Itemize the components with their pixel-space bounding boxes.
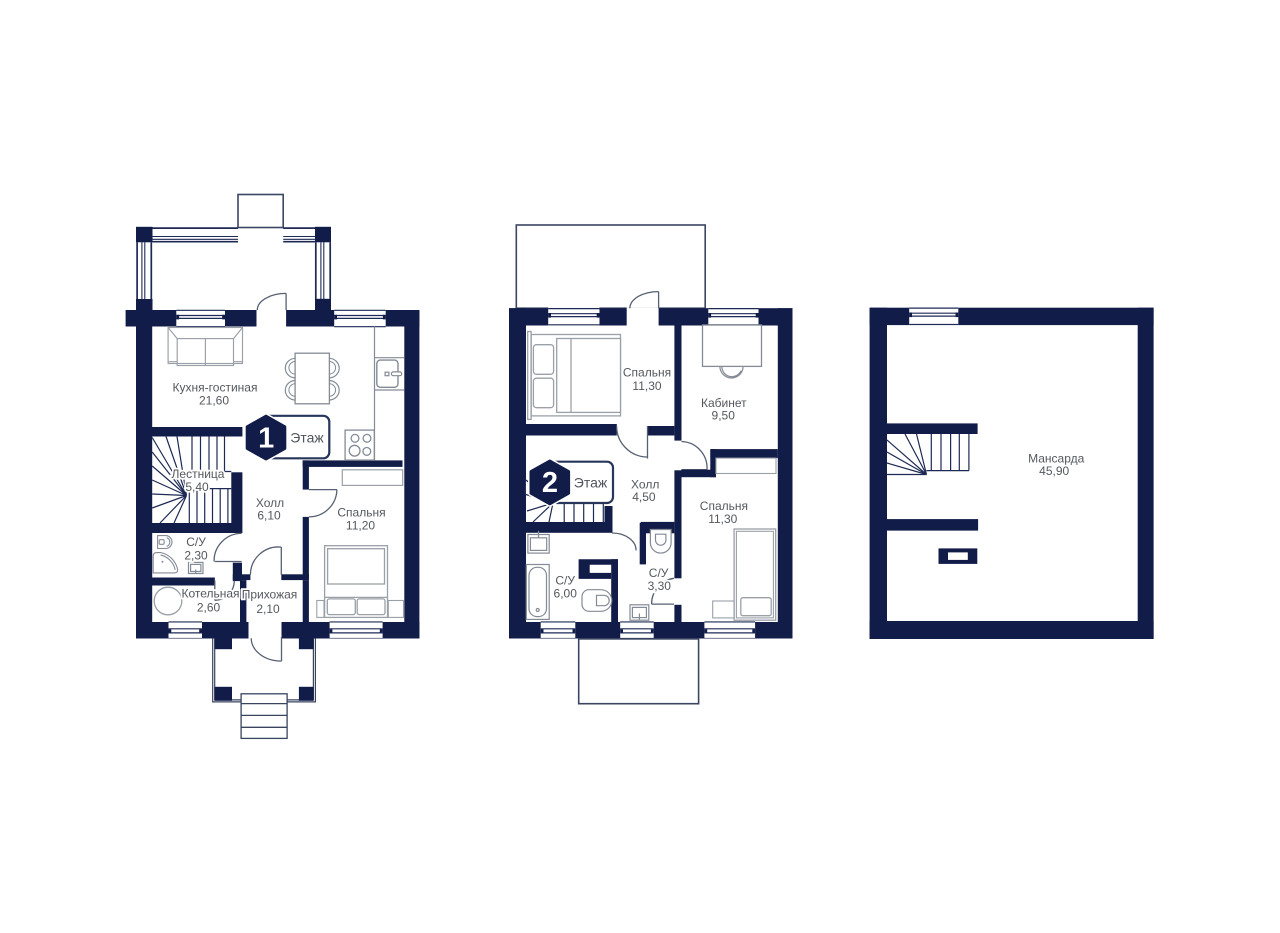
svg-text:Этаж: Этаж <box>574 474 608 490</box>
svg-text:6,00: 6,00 <box>554 586 578 600</box>
svg-text:Кухня-гостиная: Кухня-гостиная <box>173 381 258 395</box>
svg-text:С/У: С/У <box>649 566 669 580</box>
svg-text:11,20: 11,20 <box>346 519 375 533</box>
svg-text:2,10: 2,10 <box>256 602 280 616</box>
svg-text:2: 2 <box>542 467 558 499</box>
svg-text:21,60: 21,60 <box>199 394 229 408</box>
svg-text:Прихожая: Прихожая <box>242 588 298 602</box>
svg-text:45,90: 45,90 <box>1039 464 1069 478</box>
svg-text:6,10: 6,10 <box>257 509 281 523</box>
svg-text:4,50: 4,50 <box>632 490 656 504</box>
svg-text:Этаж: Этаж <box>290 430 324 446</box>
svg-text:11,30: 11,30 <box>632 379 661 393</box>
svg-text:1: 1 <box>258 422 274 454</box>
svg-text:11,30: 11,30 <box>708 512 737 526</box>
svg-text:2,60: 2,60 <box>197 600 221 614</box>
svg-text:5,40: 5,40 <box>185 480 209 494</box>
svg-text:Спальня: Спальня <box>337 505 385 519</box>
svg-text:С/У: С/У <box>186 535 206 549</box>
svg-text:Холл: Холл <box>631 477 659 491</box>
svg-text:С/У: С/У <box>555 574 575 588</box>
svg-text:Спальня: Спальня <box>623 366 671 380</box>
svg-text:3,30: 3,30 <box>648 579 672 593</box>
svg-text:Котельная: Котельная <box>181 587 239 601</box>
svg-text:9,50: 9,50 <box>712 409 736 423</box>
svg-text:Лестница: Лестница <box>172 467 225 481</box>
svg-text:2,30: 2,30 <box>184 549 208 563</box>
